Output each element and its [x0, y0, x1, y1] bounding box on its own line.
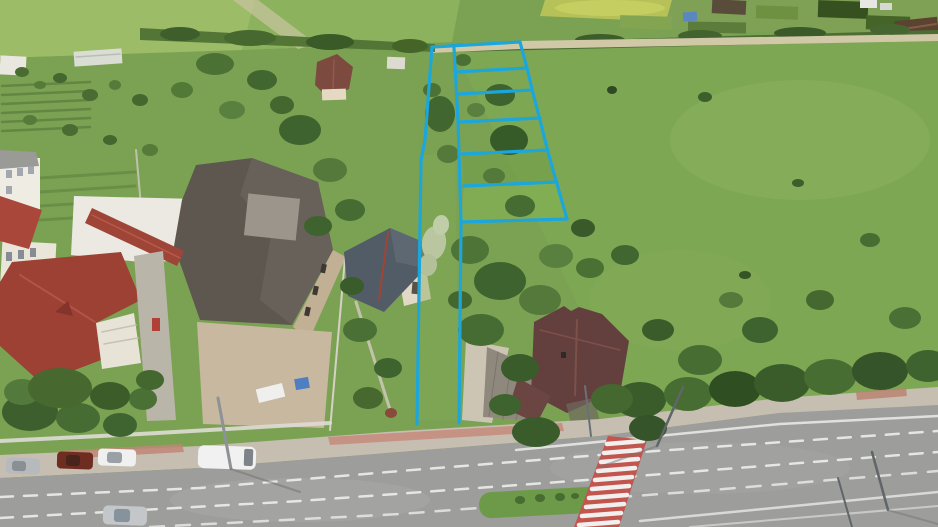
orchard-tree — [53, 73, 67, 83]
village-house-wall — [322, 89, 346, 101]
tree — [335, 199, 365, 221]
construction-courtyard — [244, 193, 300, 240]
bush — [742, 317, 778, 343]
crosswalk-stripe — [582, 513, 621, 516]
orchard-tree — [109, 80, 121, 90]
shed-roof — [880, 3, 892, 10]
orchard-tree — [15, 67, 29, 77]
garden-plot — [712, 0, 747, 15]
tree — [343, 318, 377, 342]
tree — [489, 394, 521, 416]
bush — [860, 233, 880, 247]
crosswalk-stripe — [579, 522, 618, 525]
tree — [90, 382, 130, 410]
tree — [219, 101, 245, 119]
blue-tarp-shed — [683, 12, 698, 22]
chimney — [561, 352, 566, 358]
tree — [103, 413, 137, 437]
tree — [247, 70, 277, 90]
window — [6, 252, 12, 261]
tree — [340, 277, 364, 295]
bush — [739, 271, 751, 279]
tree — [455, 54, 471, 66]
tree — [313, 158, 347, 182]
street-tree — [754, 364, 810, 402]
crosswalk-stripe — [595, 477, 632, 480]
hedge-bush — [870, 24, 910, 36]
shed-roof — [860, 0, 877, 8]
bush — [889, 307, 921, 329]
field-top-left — [0, 0, 255, 58]
tree — [353, 387, 383, 409]
orchard-tree — [34, 81, 46, 89]
tree — [374, 358, 402, 378]
orchard-tree — [142, 144, 158, 156]
crosswalk-stripe — [586, 504, 624, 507]
street-tree — [852, 352, 908, 390]
window — [30, 248, 36, 257]
white-shed — [387, 57, 405, 70]
bush — [719, 292, 743, 308]
tree — [437, 145, 459, 163]
tree — [467, 103, 485, 117]
tree — [423, 83, 441, 97]
aerial-scene — [0, 0, 938, 527]
construction-yard — [197, 322, 332, 428]
street-tree — [591, 384, 633, 414]
tree — [136, 370, 164, 390]
orchard-tree — [23, 115, 37, 125]
street-tree — [512, 417, 560, 447]
bush — [571, 219, 595, 237]
street-tree — [804, 359, 856, 395]
street-tree — [664, 377, 712, 411]
aerial-photo-canvas — [0, 0, 938, 527]
bush — [792, 179, 804, 187]
median-plant — [555, 493, 565, 501]
tree — [304, 216, 332, 236]
bush — [678, 345, 722, 375]
tree — [505, 195, 535, 217]
tree — [519, 285, 561, 315]
orchard-tree — [82, 89, 98, 101]
flower-speckles — [555, 0, 665, 16]
window — [17, 168, 23, 176]
tree — [576, 258, 604, 278]
garden-plot — [620, 15, 672, 30]
treeline-bush — [392, 39, 428, 53]
orchard-tree — [62, 124, 78, 136]
tree — [483, 168, 505, 184]
tree — [171, 82, 193, 98]
bush — [607, 86, 617, 94]
tree — [270, 96, 294, 114]
tree — [451, 236, 489, 264]
bush — [806, 290, 834, 310]
crosswalk-stripe — [589, 495, 627, 498]
village-house-ridge — [333, 60, 334, 90]
orchard-tree — [103, 135, 117, 145]
tree — [196, 53, 234, 75]
blossom-bush — [385, 408, 397, 418]
red-kiosk — [152, 318, 160, 331]
window — [6, 186, 12, 194]
window — [6, 170, 12, 178]
tree — [279, 115, 321, 145]
median-plant — [571, 493, 579, 499]
crosswalk-stripe — [598, 468, 635, 471]
car-glass — [12, 461, 26, 471]
bush — [642, 319, 674, 341]
crosswalk-stripe — [607, 441, 643, 444]
tree — [485, 84, 515, 106]
window — [18, 250, 24, 259]
corridor-grass-tint — [417, 155, 459, 420]
tree — [458, 314, 504, 346]
treeline-bush — [224, 30, 276, 46]
street-tree — [709, 371, 761, 407]
median-plant — [535, 494, 545, 502]
van-windshield — [244, 449, 254, 466]
treeline-bush — [160, 27, 200, 41]
treeline-bush — [306, 34, 354, 50]
crosswalk-stripe — [592, 486, 629, 489]
car-glass — [107, 452, 122, 464]
tree — [474, 262, 526, 300]
tree — [501, 354, 539, 382]
bush — [611, 245, 639, 265]
crosswalk-stripe — [604, 450, 640, 453]
car-glass — [114, 509, 130, 523]
tree — [28, 368, 92, 408]
garden-plot — [756, 5, 798, 19]
tree — [539, 244, 573, 268]
orchard-tree — [132, 94, 148, 106]
median-plant — [515, 496, 525, 504]
car-glass — [66, 455, 80, 466]
tree — [129, 388, 157, 410]
window — [28, 166, 34, 174]
scene-shapes — [0, 0, 938, 527]
bush — [698, 92, 712, 102]
